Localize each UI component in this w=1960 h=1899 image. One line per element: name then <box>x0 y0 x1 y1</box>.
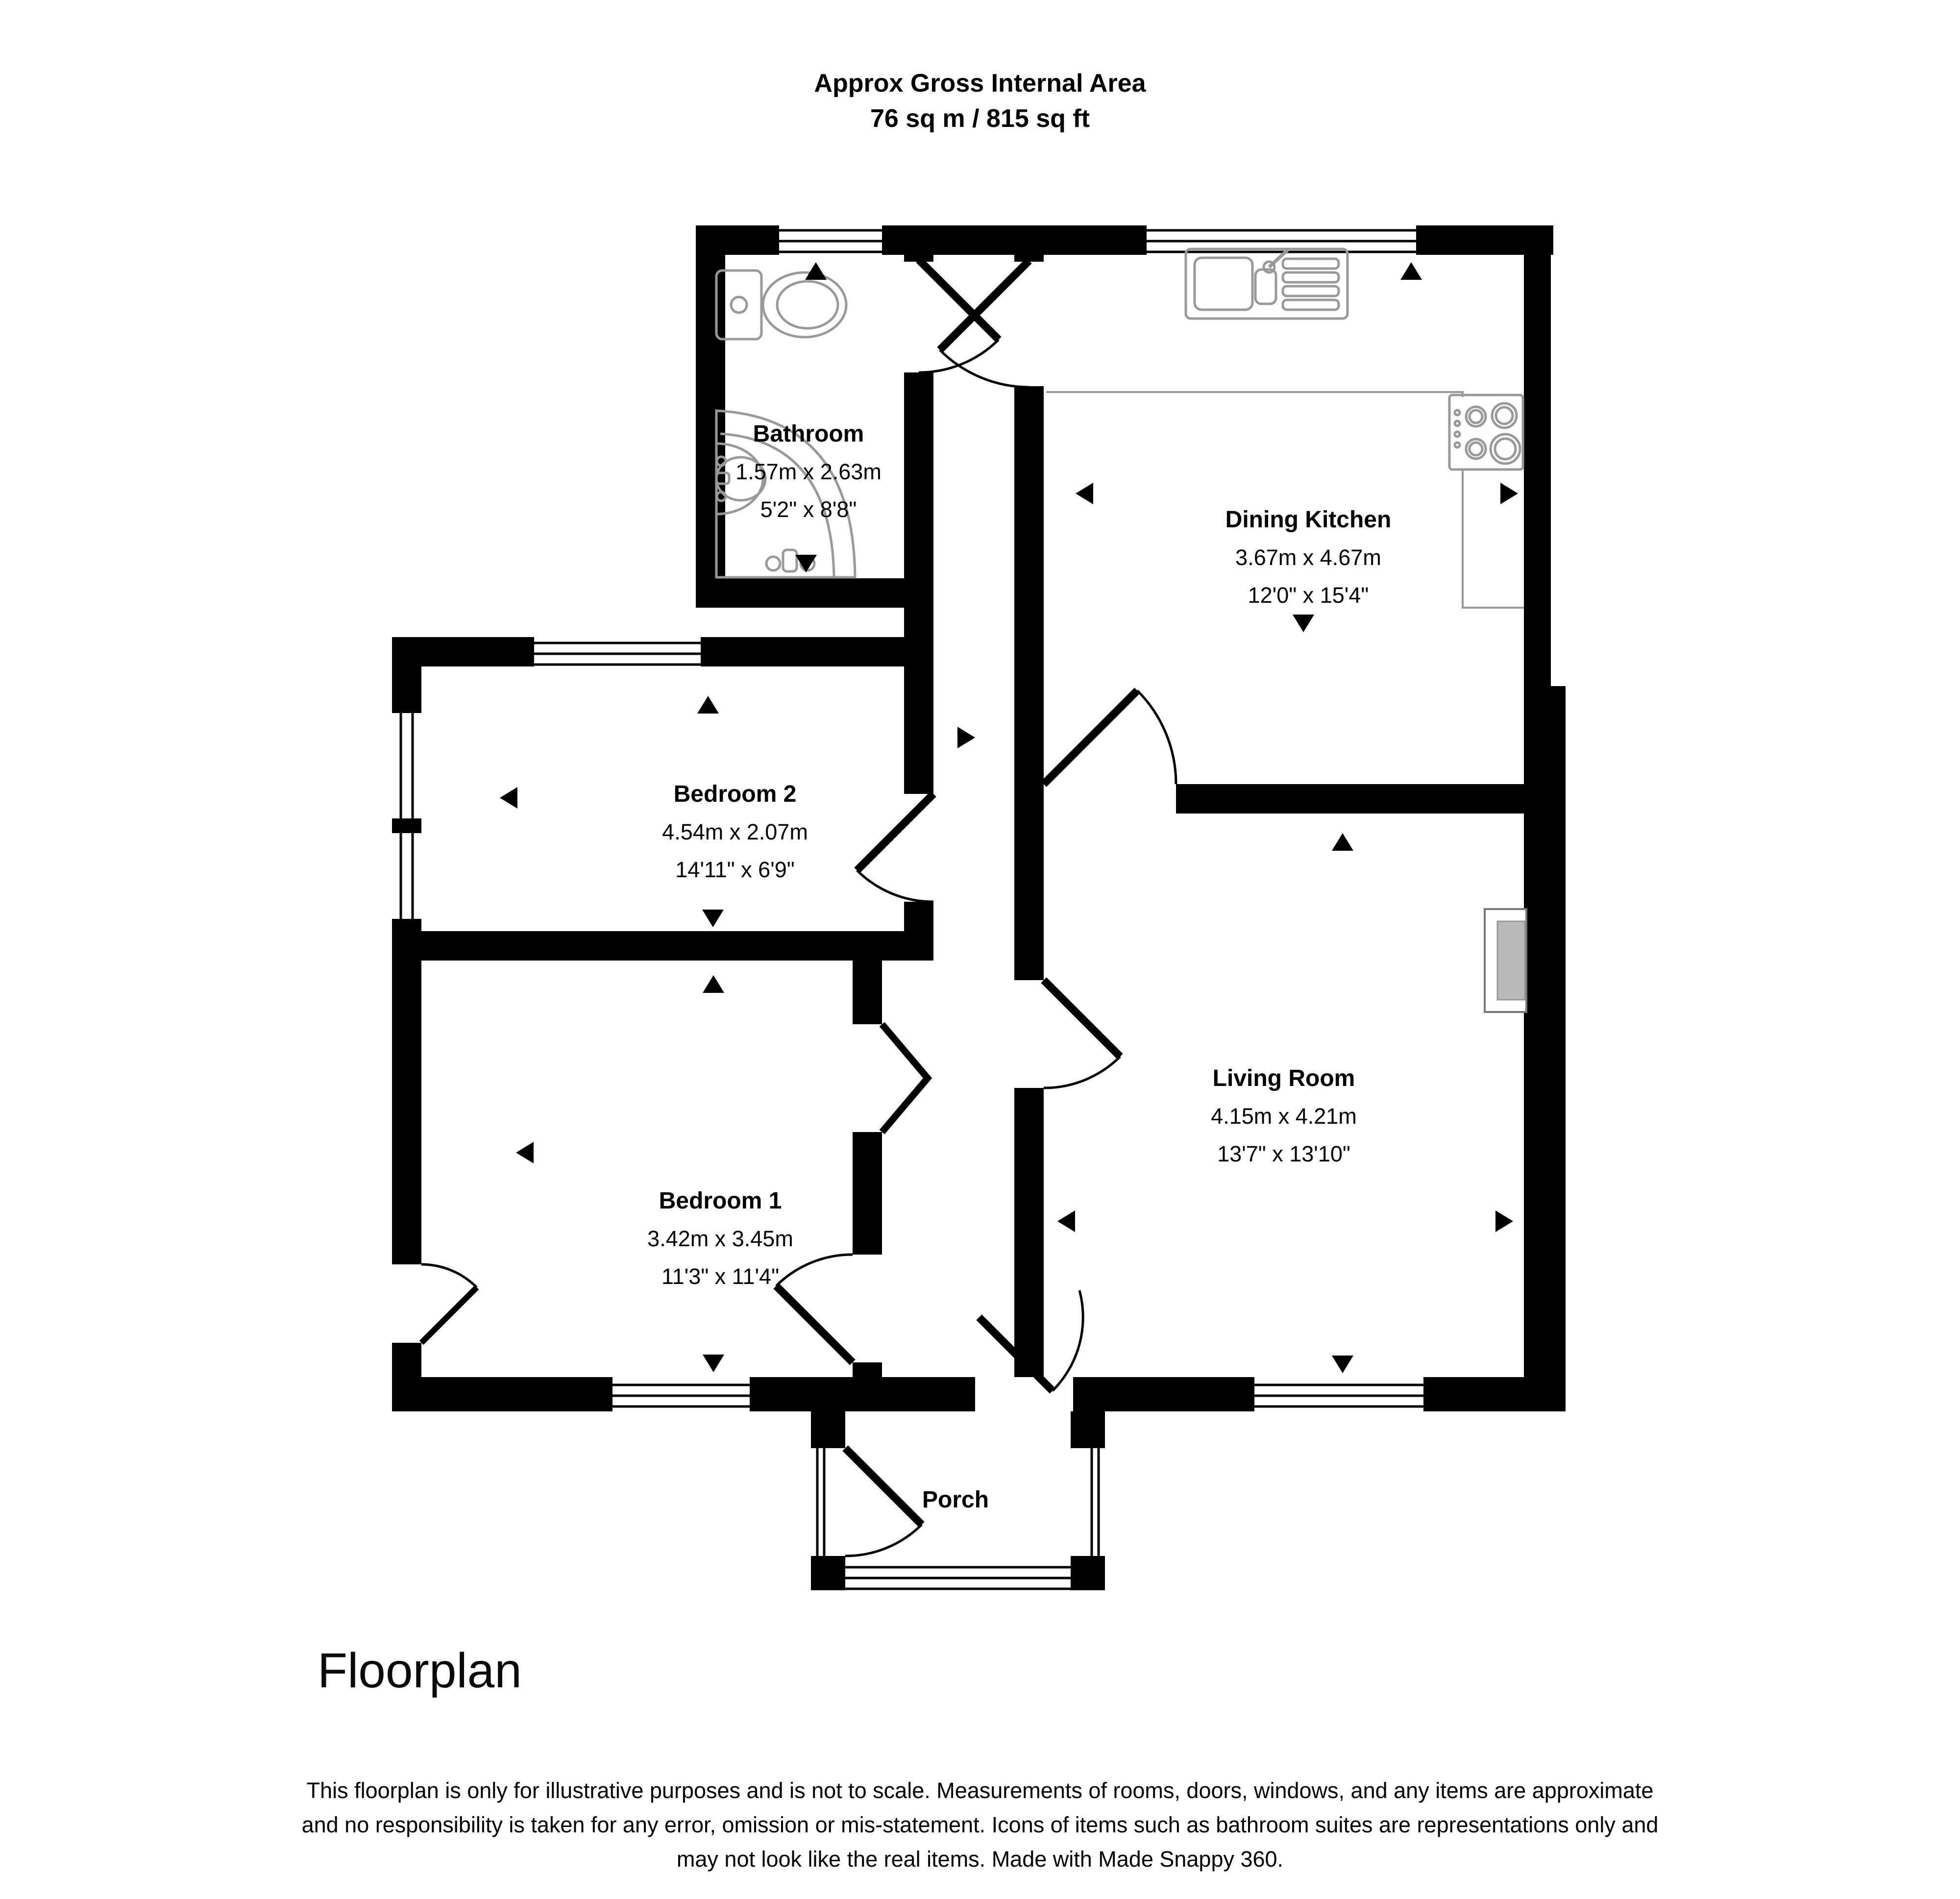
arrow-down-icon <box>702 910 724 927</box>
arrow-left-icon <box>500 787 517 809</box>
arrow-down-icon <box>1293 615 1314 632</box>
room-name: Bedroom 1 <box>647 1182 793 1220</box>
livingroom-window-icon <box>1254 1377 1423 1411</box>
livingroom-door <box>1044 980 1120 1088</box>
page-subtitle: 76 sq m / 815 sq ft <box>0 104 1960 133</box>
bedroom1-closet-doors <box>882 1024 928 1132</box>
floorplan-drawing <box>0 0 1960 1899</box>
room-name: Porch <box>922 1481 989 1519</box>
room-label-bathroom: Bathroom 1.57m x 2.63m 5'2" x 8'8" <box>735 415 882 528</box>
arrow-left-icon <box>516 1142 534 1163</box>
room-label-dining-kitchen: Dining Kitchen 3.67m x 4.67m 12'0" x 15'… <box>1225 501 1392 614</box>
kitchen-sink-icon <box>1186 249 1347 319</box>
bedroom1-window-icon <box>612 1377 750 1411</box>
room-label-porch: Porch <box>922 1481 989 1519</box>
bathroom-window-icon <box>779 225 882 255</box>
arrow-left-icon <box>1057 1210 1075 1232</box>
room-imperial: 12'0" x 15'4" <box>1225 576 1392 614</box>
room-metric: 3.67m x 4.67m <box>1225 539 1392 576</box>
kitchen-living-door <box>1044 691 1176 784</box>
arrow-right-icon <box>1500 483 1518 504</box>
arrow-up-icon <box>703 975 724 993</box>
room-imperial: 14'11" x 6'9" <box>662 851 808 888</box>
room-metric: 1.57m x 2.63m <box>735 453 882 491</box>
bedroom2-top-window-icon <box>534 637 701 666</box>
arrow-right-icon <box>1495 1210 1513 1232</box>
toilet-icon <box>716 271 846 339</box>
room-name: Bedroom 2 <box>662 775 808 813</box>
disclaimer-line: and no responsibility is taken for any e… <box>0 1812 1960 1838</box>
floorplan-page: Approx Gross Internal Area 76 sq m / 815… <box>0 0 1960 1899</box>
room-imperial: 13'7" x 13'10" <box>1211 1135 1357 1173</box>
floorplan-caption: Floorplan <box>318 1643 522 1699</box>
disclaimer-line: may not look like the real items. Made w… <box>0 1847 1960 1872</box>
porch-door <box>845 1448 922 1556</box>
room-metric: 4.54m x 2.07m <box>662 813 808 851</box>
room-imperial: 11'3" x 11'4" <box>647 1258 793 1295</box>
room-name: Living Room <box>1211 1060 1357 1097</box>
page-title: Approx Gross Internal Area <box>0 69 1960 98</box>
room-metric: 3.42m x 3.45m <box>647 1220 793 1258</box>
bedroom2-door <box>857 794 933 902</box>
disclaimer-line: This floorplan is only for illustrative … <box>0 1778 1960 1803</box>
fixtures <box>716 249 1526 1012</box>
room-name: Dining Kitchen <box>1225 501 1392 539</box>
arrow-up-icon <box>697 696 719 714</box>
arrow-down-icon <box>1332 1356 1353 1373</box>
arrow-up-icon <box>805 262 827 280</box>
arrow-down-icon <box>703 1355 724 1372</box>
room-name: Bathroom <box>735 415 882 453</box>
room-metric: 4.15m x 4.21m <box>1211 1097 1357 1135</box>
room-label-bedroom1: Bedroom 1 3.42m x 3.45m 11'3" x 11'4" <box>647 1182 793 1295</box>
room-imperial: 5'2" x 8'8" <box>735 491 882 528</box>
arrow-up-icon <box>1400 262 1422 280</box>
bathroom-door <box>919 260 999 372</box>
room-label-bedroom2: Bedroom 2 4.54m x 2.07m 14'11" x 6'9" <box>662 775 808 888</box>
bedroom1-corner-cupboard-door <box>421 1264 477 1343</box>
arrow-right-icon <box>957 727 975 748</box>
fireplace-icon <box>1485 909 1526 1012</box>
room-label-living-room: Living Room 4.15m x 4.21m 13'7" x 13'10" <box>1211 1060 1357 1173</box>
hob-icon <box>1449 395 1523 469</box>
arrow-up-icon <box>1332 833 1353 851</box>
arrow-left-icon <box>1076 483 1093 504</box>
bedroom2-side-window-icon <box>392 713 421 919</box>
